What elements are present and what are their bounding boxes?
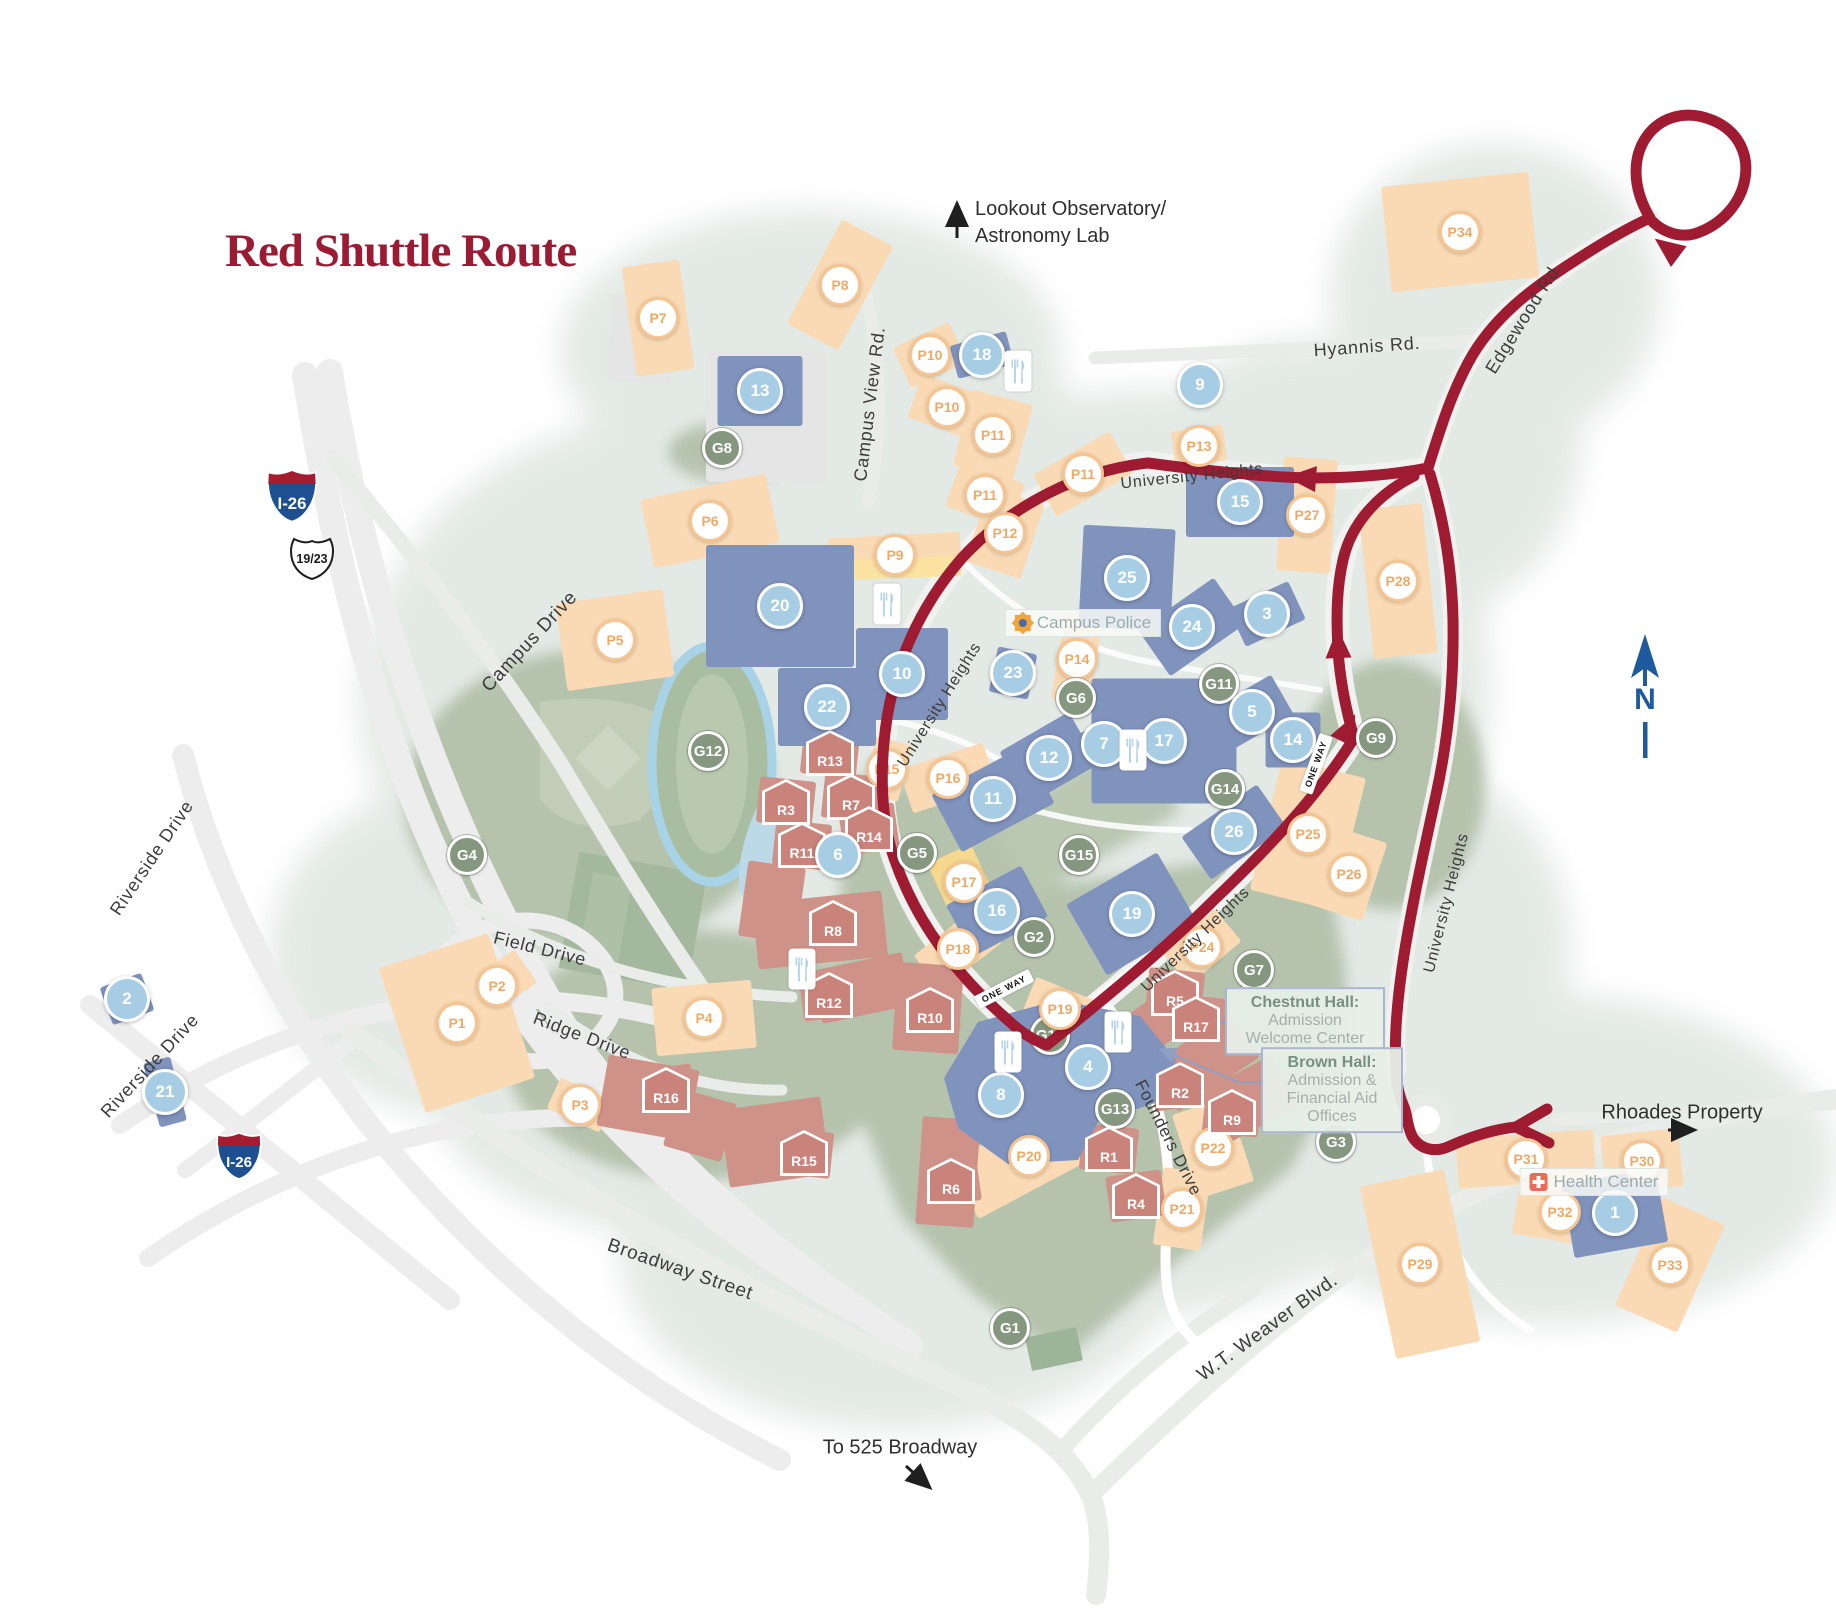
parking-marker-P21: P21 — [1161, 1188, 1203, 1230]
parking-marker-P5: P5 — [594, 619, 636, 661]
building-stop-marker-14: 14 — [1270, 717, 1316, 763]
street-label-university-heights: University Heights — [1421, 831, 1473, 974]
parking-marker-P6: P6 — [689, 500, 731, 542]
campus-ground — [270, 145, 1835, 1430]
one-way-label: ONE WAY — [974, 969, 1034, 1009]
footprint — [824, 841, 852, 869]
callout-line: Financial Aid — [1272, 1090, 1392, 1108]
footprint — [756, 776, 817, 828]
pond — [730, 788, 789, 903]
footprint — [1360, 1169, 1481, 1359]
footprint — [914, 908, 1003, 991]
one-way-label: ONE WAY — [1299, 733, 1333, 795]
footprint — [1075, 715, 1132, 772]
building-stop-marker-20: 20 — [757, 583, 803, 629]
dining-fork-knife-icon — [1120, 730, 1147, 771]
footprint — [778, 668, 876, 746]
us-route-shield-19/23: 19/23 — [288, 533, 336, 581]
callout-chestnut-hall-: Chestnut Hall:AdmissionWelcome Center — [1225, 987, 1385, 1055]
parking-marker-P28: P28 — [1377, 560, 1419, 602]
parking-marker-P11: P11 — [972, 414, 1014, 456]
footprint — [99, 973, 154, 1026]
green-lot-marker-G7: G7 — [1234, 950, 1274, 990]
residence-marker-R17: R17 — [1172, 996, 1220, 1042]
residence-label: R4 — [1115, 1176, 1157, 1216]
building-stop-marker-24: 24 — [1169, 604, 1215, 650]
footprint — [950, 331, 1015, 379]
lookout-observatory-label: Lookout Observatory/ Astronomy Lab — [975, 196, 1166, 250]
parking-marker-P26: P26 — [1328, 853, 1370, 895]
fork-knife-glyph — [1010, 357, 1026, 385]
callout-connectors — [1162, 1002, 1278, 1082]
residence-marker-R14: R14 — [845, 806, 893, 852]
green-lot-marker-G12: G12 — [688, 731, 728, 771]
building-footprints — [99, 331, 1668, 1258]
callout-line: Brown Hall: — [1272, 1054, 1392, 1072]
footprint — [1092, 679, 1237, 804]
footprint — [718, 356, 803, 426]
green-lot-marker-G5: G5 — [897, 833, 937, 873]
callout-line: Chestnut Hall: — [1236, 994, 1374, 1012]
health-center-label: Health Center — [1520, 1168, 1669, 1196]
parking-marker-P17: P17 — [943, 861, 985, 903]
parking-marker-P24: P24 — [1181, 926, 1223, 968]
dining-fork-knife-icon — [874, 584, 901, 625]
residence-label: R8 — [812, 903, 854, 943]
building-stop-marker-11: 11 — [970, 776, 1016, 822]
street-label-riverside-drive: Riverside Drive — [106, 797, 198, 920]
residence-marker-R7: R7 — [827, 774, 875, 820]
residence-label: R11 — [781, 825, 823, 865]
street-label-riverside-drive: Riverside Drive — [97, 1010, 204, 1122]
footprint — [772, 819, 833, 871]
footprint — [555, 589, 674, 691]
footprint — [798, 968, 860, 1021]
parking-marker-P31: P31 — [1505, 1138, 1547, 1180]
footprint — [706, 545, 854, 667]
footprint — [1033, 431, 1133, 517]
roads — [90, 218, 1836, 1595]
residence-label: R5 — [1154, 973, 1196, 1013]
footprint — [899, 743, 997, 814]
red-cross-icon — [1530, 1173, 1548, 1191]
street-label-campus-drive: Campus Drive — [478, 587, 583, 697]
building-stop-marker-5: 5 — [1229, 689, 1275, 735]
residence-marker-R10: R10 — [906, 987, 954, 1033]
dining-fork-knife-icon — [995, 1032, 1022, 1073]
footprint — [1051, 612, 1104, 705]
footprint — [622, 259, 695, 376]
residence-marker-R2: R2 — [1156, 1062, 1204, 1108]
residence-label: R9 — [1211, 1092, 1253, 1132]
gray-buildings — [607, 294, 826, 482]
residence-blocks — [596, 860, 1299, 1228]
green-lot-marker-G11: G11 — [1199, 664, 1239, 704]
footprint — [635, 1063, 697, 1116]
residence-label: R7 — [830, 777, 872, 817]
footprint — [1210, 675, 1294, 750]
footprint — [1105, 1169, 1167, 1222]
parking-marker-P18: P18 — [937, 928, 979, 970]
footprint — [1250, 758, 1366, 911]
under-route-markers: P15P24G10 — [0, 0, 1836, 1621]
footprint — [1138, 578, 1245, 677]
residence-marker-R8: R8 — [809, 900, 857, 946]
callout-line: Admission & — [1272, 1072, 1392, 1090]
footprint — [143, 1057, 187, 1128]
residence-marker-R13: R13 — [806, 730, 854, 776]
footprint — [1166, 993, 1227, 1045]
residence-marker-R9: R9 — [1208, 1089, 1256, 1135]
footprint — [1186, 467, 1294, 537]
footprint — [1066, 852, 1198, 976]
parking-marker-P9: P9 — [874, 534, 916, 576]
footprint — [1615, 1197, 1725, 1332]
footprint — [946, 865, 1048, 956]
footprint — [1381, 172, 1539, 293]
footprint — [838, 802, 900, 855]
building-stop-marker-7: 7 — [1081, 721, 1127, 767]
footprint — [989, 646, 1038, 699]
building-stop-marker-18: 18 — [959, 332, 1005, 378]
footprint — [1153, 1167, 1211, 1251]
footprint — [949, 1093, 1110, 1219]
footprint — [1228, 581, 1306, 647]
compass-north-label: N — [1634, 683, 1656, 717]
residence-marker-R6: R6 — [927, 1158, 975, 1204]
green-lot-marker-G15: G15 — [1059, 835, 1099, 875]
parking-marker-P7: P7 — [637, 297, 679, 339]
parking-marker-P10: P10 — [909, 334, 951, 376]
footprint — [945, 461, 1025, 529]
fork-knife-glyph — [794, 955, 810, 983]
building-stop-marker-3: 3 — [1244, 591, 1290, 637]
residence-label: R16 — [645, 1070, 687, 1110]
footprint — [651, 980, 757, 1056]
building-stop-marker-17: 17 — [1141, 718, 1187, 764]
footprint — [547, 1077, 614, 1132]
parking-marker-P2: P2 — [476, 965, 518, 1007]
building-stop-marker-23: 23 — [990, 650, 1036, 696]
residence-footprints — [635, 727, 1262, 1222]
footprint — [1276, 456, 1338, 573]
footprint — [787, 219, 894, 350]
building-stop-marker-16: 16 — [974, 888, 1020, 934]
footprint — [899, 983, 961, 1036]
footprint — [953, 389, 1033, 480]
interstate-shield-art — [264, 468, 320, 524]
interstate-shield-art — [214, 1131, 264, 1181]
footprint — [1600, 1128, 1684, 1194]
campus-map: P15P24G10 — [0, 0, 1836, 1621]
green-lot-marker-G13: G13 — [1095, 1089, 1135, 1129]
parking-marker-P20: P20 — [1008, 1135, 1050, 1177]
green-lot-marker-G2: G2 — [1014, 917, 1054, 957]
parking-marker-P13: P13 — [1178, 425, 1220, 467]
footprint — [800, 727, 861, 779]
building-stop-marker-21: 21 — [142, 1069, 188, 1115]
green-lot-marker-G6: G6 — [1056, 678, 1096, 718]
green-lot-marker-G9: G9 — [1356, 718, 1396, 758]
parking-marker-P1: P1 — [436, 1002, 478, 1044]
parking-marker-P8: P8 — [819, 264, 861, 306]
us-route-shield-art — [288, 533, 336, 581]
parking-marker-P22: P22 — [1192, 1127, 1234, 1169]
parking-marker-P14: P14 — [1056, 638, 1098, 680]
street-label-field-drive: Field Drive — [491, 927, 588, 970]
building-stop-marker-26: 26 — [1211, 809, 1257, 855]
residence-marker-R4: R4 — [1112, 1173, 1160, 1219]
parking-marker-P11: P11 — [1062, 453, 1104, 495]
parking-marker-P30: P30 — [1621, 1140, 1663, 1182]
labels-layer: Red Shuttle Route Lookout Observatory/ A… — [0, 0, 1836, 1621]
footprint — [821, 771, 882, 823]
street-label-university-heights: University Heights — [1120, 461, 1264, 494]
parking-marker-P25: P25 — [1287, 813, 1329, 855]
green-lot-marker-G3: G3 — [1316, 1122, 1356, 1162]
footprint — [640, 473, 780, 568]
building-stop-marker-10: 10 — [879, 651, 925, 697]
residence-label: R15 — [783, 1133, 825, 1173]
footprint — [861, 736, 913, 802]
residence-marker-R16: R16 — [642, 1067, 690, 1113]
footprint — [999, 712, 1098, 804]
parking-marker-P34: P34 — [1439, 211, 1481, 253]
interstate-shield-I-26: I-26 — [264, 468, 320, 524]
dining-hall-complex — [944, 1000, 1176, 1164]
building-stop-marker-2: 2 — [104, 976, 150, 1022]
street-label-founders-drive: Founders Drive — [1130, 1077, 1206, 1200]
footprint — [1189, 372, 1211, 398]
annotation-arrows — [906, 206, 1692, 1486]
building-stop-marker-9: 9 — [1177, 362, 1223, 408]
building-stop-marker-19: 19 — [1109, 891, 1155, 937]
footprint — [920, 1154, 982, 1207]
parking-marker-P16: P16 — [927, 757, 969, 799]
footprint — [1021, 977, 1100, 1041]
green-spaces — [405, 422, 1485, 1360]
footprint — [1202, 1086, 1263, 1138]
footprint — [1149, 1058, 1211, 1111]
building-stop-marker-25: 25 — [1104, 555, 1150, 601]
street-label-university-heights: University Heights — [1138, 884, 1254, 997]
callout-line: Welcome Center — [1236, 1030, 1374, 1048]
parking-marker-P29: P29 — [1399, 1243, 1441, 1285]
residence-marker-R12: R12 — [805, 972, 853, 1018]
residence-label: R1 — [1088, 1129, 1130, 1169]
footprint — [907, 374, 987, 440]
footprint — [1145, 967, 1206, 1019]
residence-marker-R3: R3 — [762, 779, 810, 825]
parking-marker-P10: P10 — [926, 386, 968, 428]
shuttle-route-art — [0, 0, 1836, 1621]
building-stop-marker-22: 22 — [804, 684, 850, 730]
footprint — [936, 855, 992, 908]
footprint — [1311, 827, 1388, 922]
fork-knife-glyph — [1125, 736, 1141, 764]
footprint — [1512, 1176, 1609, 1248]
to-525-broadway-label: To 525 Broadway — [823, 1437, 978, 1460]
residence-label: R14 — [848, 809, 890, 849]
residence-label: R3 — [765, 782, 807, 822]
parking-marker-P27: P27 — [1286, 494, 1328, 536]
building-stop-marker-15: 15 — [1217, 479, 1263, 525]
footprint — [856, 628, 948, 720]
footprint — [1172, 1097, 1254, 1199]
footprint — [802, 896, 864, 949]
green-lot-marker-G8: G8 — [702, 428, 742, 468]
route-arrows — [1285, 228, 1686, 747]
parking-marker-P11: P11 — [964, 474, 1006, 516]
footprint — [774, 1127, 835, 1179]
footprint — [1181, 784, 1286, 879]
street-label-edgewood-rd-: Edgewood Rd. — [1481, 258, 1566, 377]
residence-label: R10 — [909, 990, 951, 1030]
callout-line: Admission — [1236, 1012, 1374, 1030]
parking-marker-P19: P19 — [1039, 988, 1081, 1030]
fork-knife-glyph — [1000, 1038, 1016, 1066]
residence-marker-R1: R1 — [1085, 1126, 1133, 1172]
residence-marker-R11: R11 — [778, 822, 826, 868]
green-lot-marker-G14: G14 — [1205, 769, 1245, 809]
shuttle-route-line — [882, 115, 1746, 1150]
callout-line: Offices — [1272, 1108, 1392, 1126]
yellow-buildings — [829, 556, 997, 921]
map-base-art — [0, 0, 1836, 1621]
north-arrow-icon — [1631, 634, 1659, 758]
parking-marker-P32: P32 — [1539, 1191, 1581, 1233]
footprint — [1562, 1168, 1669, 1258]
markers-layer: P1P2P3P4P5P6P7P8P9P10P10P11P11P11P12P13P… — [0, 0, 1836, 1621]
parking-marker-P3: P3 — [559, 1084, 601, 1126]
residence-label: R17 — [1175, 999, 1217, 1039]
fork-knife-glyph — [879, 590, 895, 618]
footprint — [379, 933, 535, 1113]
parking-marker-P33: P33 — [1649, 1244, 1691, 1286]
street-label-w-t-weaver-blvd-: W.T. Weaver Blvd. — [1193, 1270, 1342, 1387]
street-label-university-heights: University Heights — [894, 639, 985, 770]
footprint — [1078, 525, 1175, 632]
footprint — [931, 746, 1054, 853]
dining-fork-knife-icon — [1105, 1012, 1132, 1053]
building-stop-marker-12: 12 — [1026, 735, 1072, 781]
footprint — [1079, 1123, 1140, 1175]
campus-police-label: Campus Police — [1005, 609, 1161, 637]
page-title: Red Shuttle Route — [225, 224, 576, 278]
residence-label: R13 — [809, 733, 851, 773]
footprint — [1162, 909, 1241, 985]
footprint — [457, 950, 537, 1023]
police-badge-icon — [1012, 612, 1035, 635]
sports-fields — [540, 646, 772, 990]
fork-knife-glyph — [1110, 1018, 1126, 1046]
street-label-broadway-street: Broadway Street — [604, 1235, 755, 1305]
building-stop-marker-8: 8 — [978, 1072, 1024, 1118]
callout-brown-hall-: Brown Hall:Admission &Financial AidOffic… — [1261, 1047, 1403, 1133]
residence-marker-R5: R5 — [1151, 970, 1199, 1016]
footprint — [1358, 503, 1437, 659]
dining-fork-knife-icon — [789, 949, 816, 990]
parking-lots — [379, 172, 1725, 1359]
parking-marker-P15: P15 — [866, 748, 908, 790]
building-stop-marker-6: 6 — [815, 832, 861, 878]
footprint — [1266, 713, 1321, 768]
street-label-ridge-drive: Ridge Drive — [530, 1008, 634, 1064]
green-lot-marker-G1: G1 — [990, 1308, 1030, 1348]
street-label-campus-view-rd-: Campus View Rd. — [850, 325, 890, 482]
green-building — [1025, 1327, 1083, 1371]
building-stop-marker-1: 1 — [1592, 1190, 1638, 1236]
building-stop-marker-13: 13 — [737, 368, 783, 414]
rhoades-property-label: Rhoades Property — [1601, 1102, 1762, 1125]
green-lot-marker-G4: G4 — [447, 835, 487, 875]
footprint — [1455, 1129, 1596, 1189]
footprint — [828, 532, 962, 579]
parking-marker-P4: P4 — [683, 997, 725, 1039]
parking-marker-P12: P12 — [984, 512, 1026, 554]
residence-marker-R15: R15 — [780, 1130, 828, 1176]
footprint — [893, 322, 968, 388]
street-label-hyannis-rd-: Hyannis Rd. — [1313, 333, 1421, 361]
residence-label: R2 — [1159, 1065, 1201, 1105]
dining-fork-knife-icon — [1005, 351, 1032, 392]
interstate-shield-I-26: I-26 — [214, 1131, 264, 1181]
footprint — [1171, 425, 1228, 468]
building-stop-marker-4: 4 — [1065, 1044, 1111, 1090]
residence-label: R6 — [930, 1161, 972, 1201]
green-lot-marker-G10: G10 — [1030, 1015, 1070, 1055]
footprint — [965, 487, 1044, 579]
residence-label: R12 — [808, 975, 850, 1015]
